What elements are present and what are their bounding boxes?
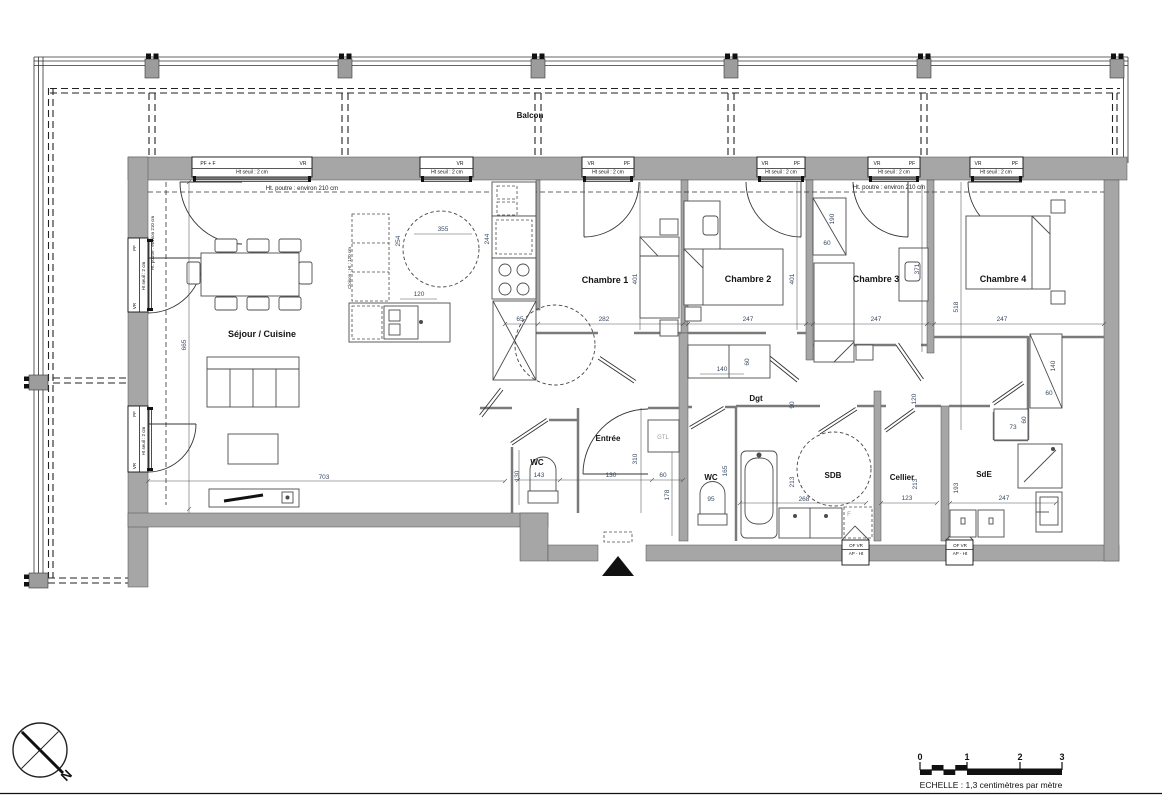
room-label: Dgt [749,394,763,403]
room-label: Séjour / Cuisine [228,329,296,339]
living-room-furniture [187,239,312,507]
dimension-label: 140 [717,366,728,373]
window-label: VR [975,161,982,167]
window-label: VR [874,161,881,167]
window-label: Ht seuil : 2 cm [765,170,797,176]
scale-caption: ECHELLE : 1,3 centimètres par mètre [920,780,1063,790]
dimension-label: 165 [722,465,729,476]
dimension-label: 703 [319,474,330,481]
room-label: WC [530,458,544,467]
room-label: Chambre 2 [725,274,772,284]
dimension-label: 247 [999,495,1010,502]
window-label: VR [588,161,595,167]
annotation-label: F [847,512,851,518]
doors [148,182,1024,474]
dimension-label: 401 [632,273,639,284]
floor-plan-page: Séjour / CuisineChambre 1Chambre 2Chambr… [0,0,1162,800]
room-label: Balcon [517,111,544,120]
dimension-label: 244 [484,233,491,244]
dimension-label: 90 [789,401,796,409]
window-label: VR [132,462,137,469]
window-label: VR [457,161,464,167]
dimension-label: 60 [823,240,831,247]
window-label: Ht seuil : 2 cm [980,170,1012,176]
dimension-label: 60 [659,472,667,479]
dimension-label: 355 [438,226,449,233]
dimension-label: 120 [911,393,918,404]
dimension-label: 60 [1021,416,1028,424]
dimension-label: 130 [514,470,521,481]
room-label: Chambre 3 [853,274,900,284]
window-label: PF [132,411,137,417]
floor-plan-drawing: Séjour / CuisineChambre 1Chambre 2Chambr… [0,0,1162,800]
scale-tick-label: 0 [917,752,922,762]
dimension-label: 268 [799,496,810,503]
dimension-label: 193 [953,482,960,493]
dimension-label: 371 [914,263,921,274]
dimension-label: 213 [912,478,919,489]
dimension-label: 73 [1009,424,1017,431]
annotation-label: GTL [657,435,669,441]
window-label: VR [132,302,137,309]
bedroom-furniture [640,198,1065,378]
dimension-label: 60 [744,358,751,366]
window-label: Ht seuil : 2 cm [141,261,146,290]
annotation-label: Cloison : Ht : 120 cm [347,247,352,289]
scale-bar: ECHELLE : 1,3 centimètres par mètre [920,762,1063,790]
dimension-label: 140 [1050,360,1057,371]
window-label: PF + F [200,161,215,167]
dimension-label: 282 [599,316,610,323]
dimension-label: 401 [789,273,796,284]
dimension-label: 665 [181,339,188,350]
room-label: SDB [825,471,842,480]
dimension-label: 213 [789,476,796,487]
window-label: PF [794,161,800,167]
window-label: Ht seuil : 2 cm [592,170,624,176]
annotation-label: Ht. poutre : environ 210 cm [150,216,155,271]
dimension-label: 254 [395,235,402,246]
scale-tick-label: 3 [1059,752,1064,762]
window-label: OF VR [849,543,864,548]
annotation-label: Ht. poutre : environ 210 cm [266,186,338,192]
beam-guides [148,182,1104,505]
window-label: Ht seuil : 2 cm [431,170,463,176]
window-label: PF [624,161,630,167]
balcony-railing [34,57,1128,588]
window-label: VR [300,161,307,167]
window-label: AP - Ht [849,551,864,556]
window-label: OF VR [953,543,968,548]
scalebar-numbers-layer: 0123 [917,752,1064,762]
window-label: Ht seuil : 2 cm [141,426,146,455]
scale-tick-label: 1 [964,752,969,762]
dimension-label: 60 [1045,390,1053,397]
room-label: Entrée [596,434,621,443]
dimension-label: 190 [829,213,836,224]
dimension-label: 247 [871,316,882,323]
window-label: PF [132,245,137,251]
dimension-label: 95 [707,496,715,503]
dimension-label: 123 [902,495,913,502]
window-label: Ht seuil : 2 cm [236,170,268,176]
room-label: SdE [976,470,992,479]
dimension-label: 65 [516,316,524,323]
dimension-label: 130 [606,472,617,479]
room-label: WC [704,473,718,482]
window-label: VR [762,161,769,167]
entrance-marker [602,532,634,576]
window-label: Ht seuil : 2 cm [878,170,910,176]
dimension-label: 247 [743,316,754,323]
dimension-label: 143 [534,472,545,479]
room-label: Cellier [890,473,914,482]
window-label: AP - Ht [953,551,968,556]
annotation-label: Ht. poutre : environ 210 cm [853,185,925,191]
dimension-label: 178 [664,489,671,500]
window-label: PF [1012,161,1018,167]
dimension-label: 518 [953,301,960,312]
north-compass: N [13,723,75,784]
dimension-label: 247 [997,316,1008,323]
kitchen-fixtures [349,182,536,380]
room-label: Chambre 1 [582,275,629,285]
dimension-label: 310 [632,453,639,464]
room-label: Chambre 4 [980,274,1027,284]
dimension-label: 120 [414,291,425,298]
window-label: PF [909,161,915,167]
scale-tick-label: 2 [1017,752,1022,762]
